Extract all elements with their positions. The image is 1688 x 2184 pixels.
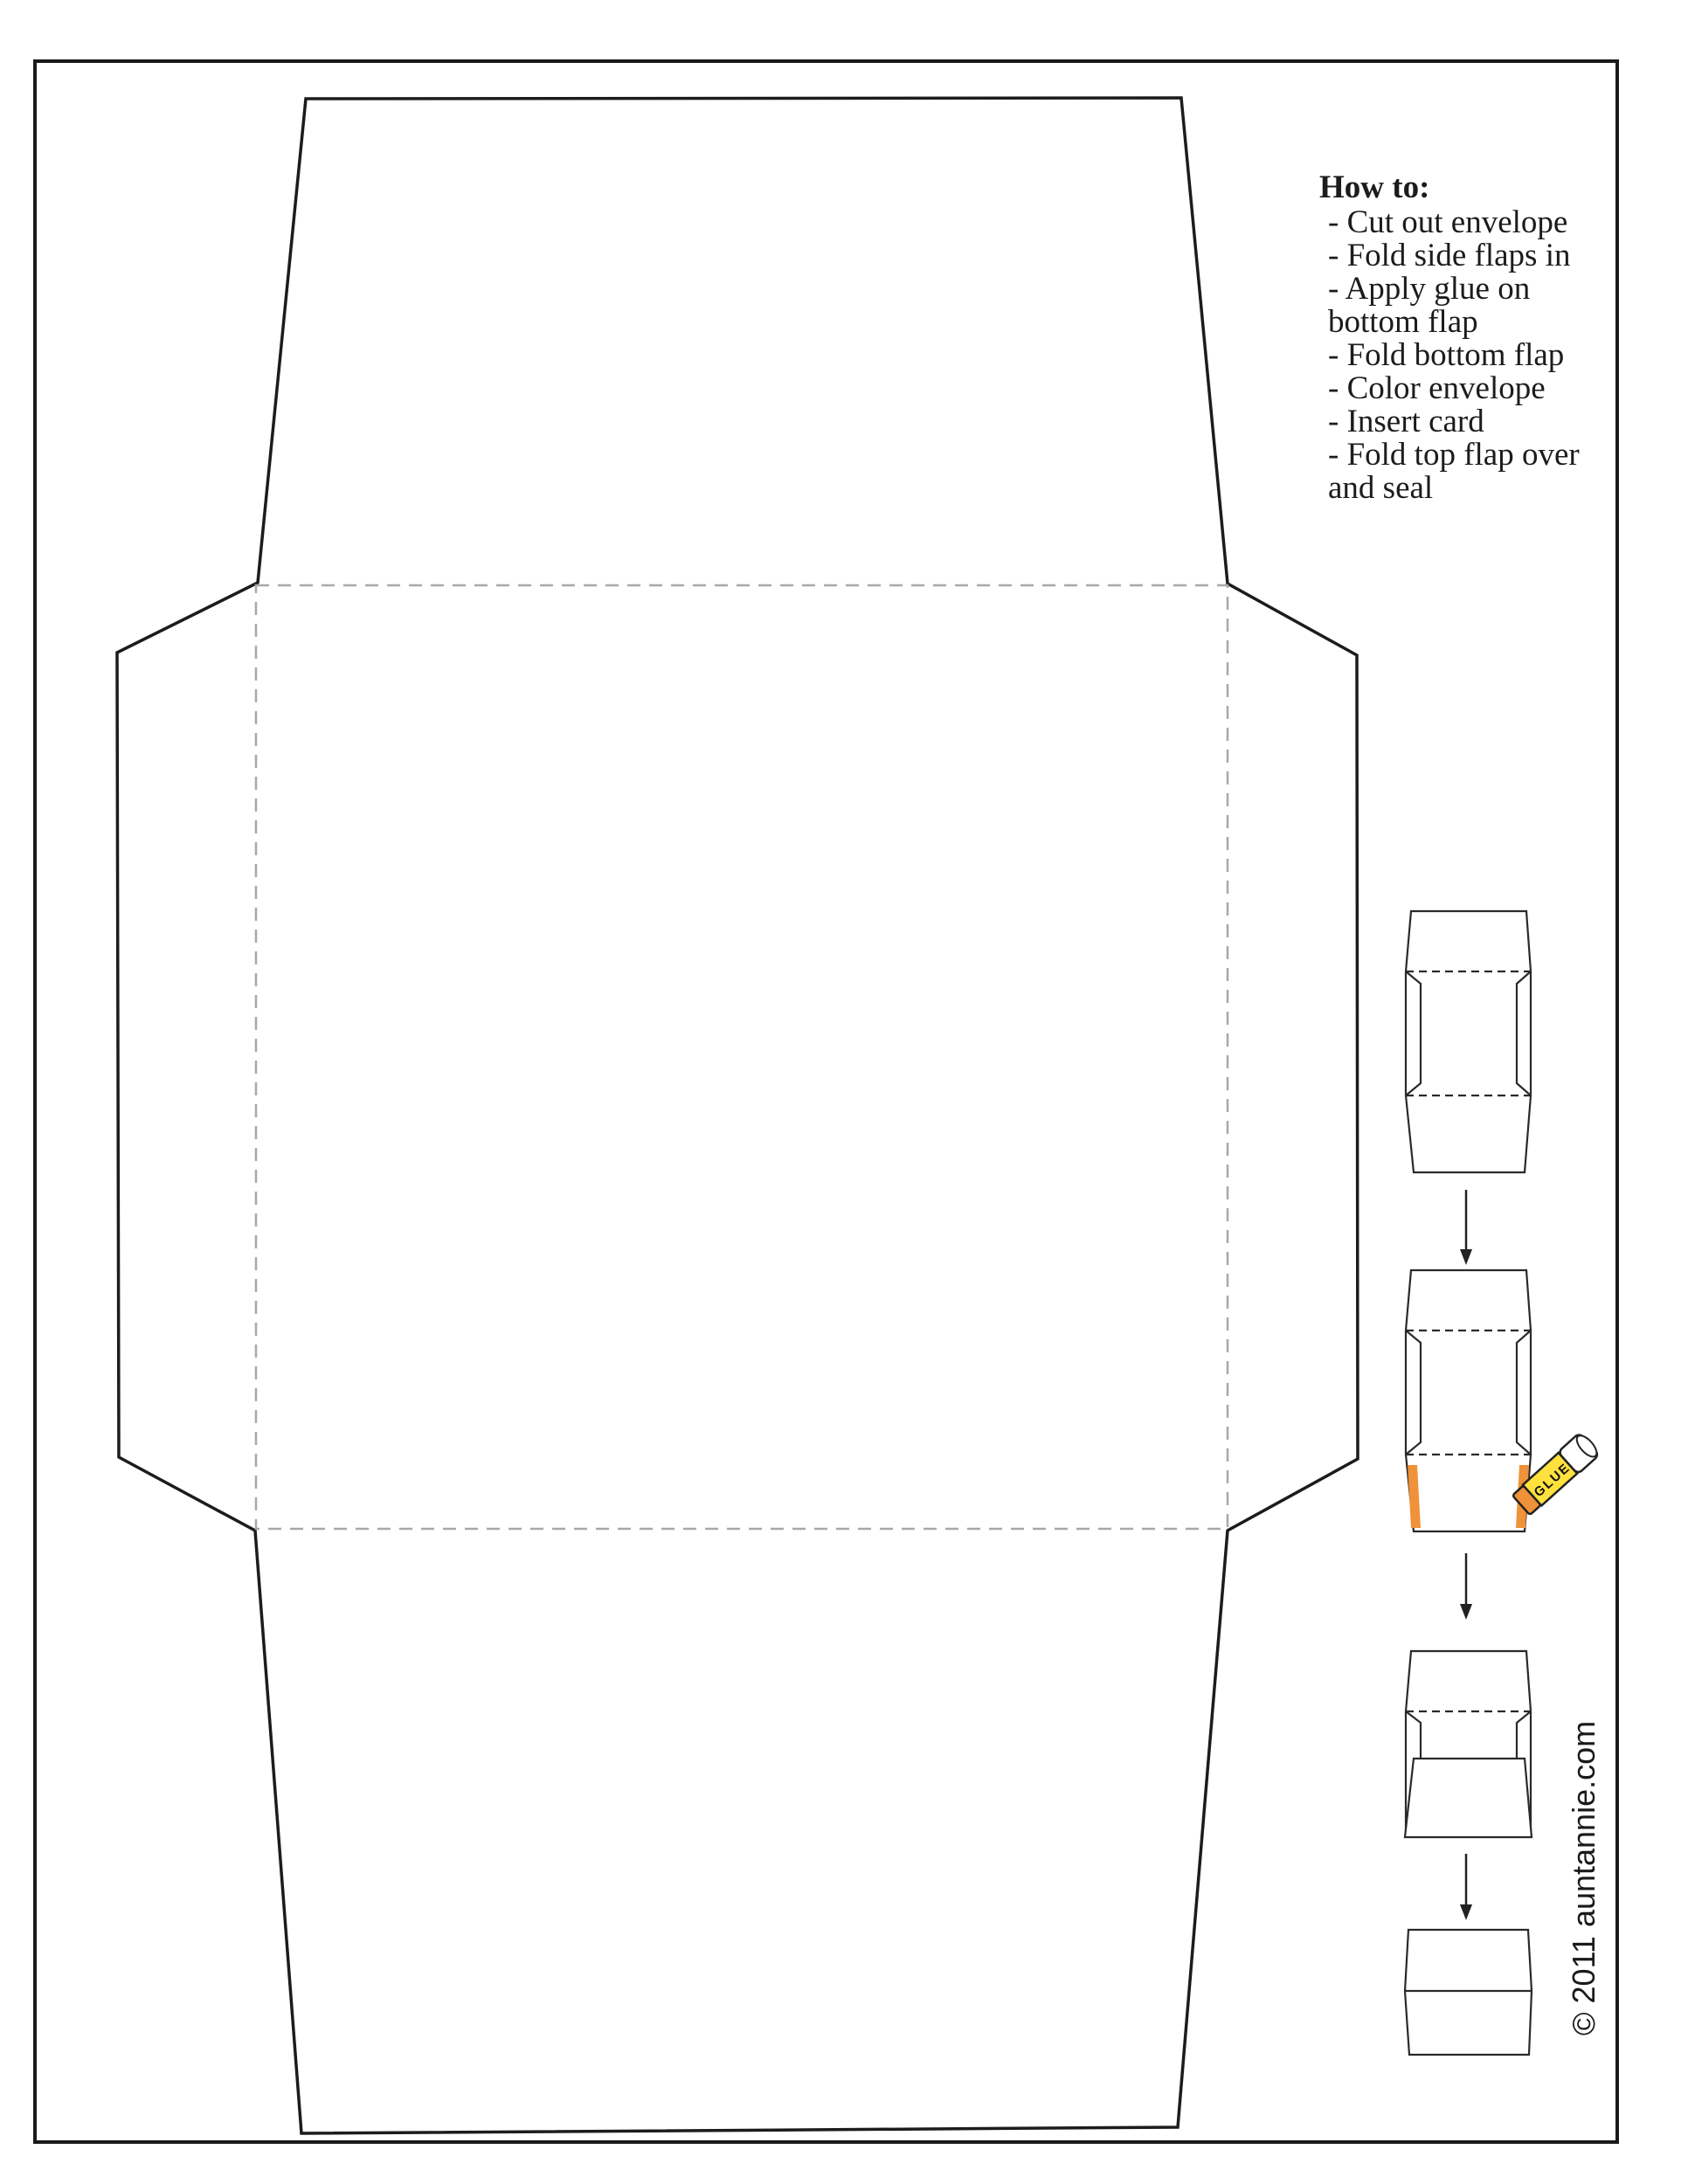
howto-line: - Apply glue on — [1319, 273, 1625, 306]
howto-line: - Insert card — [1319, 405, 1625, 439]
howto-line: - Fold bottom flap — [1319, 339, 1625, 372]
arrow-step-1-to-2 — [1460, 1190, 1472, 1265]
copyright-text: © 2011 auntannie.com — [1566, 1721, 1602, 2035]
arrow-step-3-to-4 — [1460, 1854, 1472, 1920]
arrowhead-icon — [1460, 1904, 1472, 1920]
envelope-template — [117, 98, 1358, 2133]
howto-line: - Fold top flap over — [1319, 439, 1625, 472]
step-diagram-fold-bottom-flap — [1405, 1651, 1532, 1837]
mini-closed-envelope-outline — [1405, 1930, 1532, 2055]
envelope-cut-outline — [117, 98, 1358, 2133]
step-diagram-finished-envelope — [1405, 1930, 1532, 2055]
howto-title: How to: — [1319, 171, 1625, 204]
mini-envelope-outline-copy — [1406, 1270, 1531, 1531]
mini-folded-side-flap-left — [1406, 1711, 1421, 1761]
arrow-step-2-to-3 — [1460, 1553, 1472, 1620]
howto-line: - Cut out envelope — [1319, 206, 1625, 239]
envelope-fold-dashed-lines — [256, 585, 1228, 1529]
arrowhead-icon — [1460, 1249, 1472, 1265]
printable-envelope-template-page: GLUE How to: - Cut out en — [0, 0, 1688, 2184]
mini-folded-bottom-flap — [1405, 1759, 1532, 1837]
mini-top-flap-outline — [1406, 1651, 1531, 1711]
arrowhead-icon — [1460, 1604, 1472, 1620]
howto-instructions: How to: - Cut out envelope - Fold side f… — [1319, 171, 1625, 505]
howto-line: and seal — [1319, 472, 1625, 505]
mini-envelope-outline — [1406, 911, 1531, 1172]
howto-line: - Fold side flaps in — [1319, 239, 1625, 273]
step-diagram-apply-glue: GLUE — [1406, 1270, 1602, 1531]
howto-line: - Color envelope — [1319, 372, 1625, 405]
step-diagram-fold-side-flaps — [1406, 911, 1531, 1172]
mini-folded-side-flap-right — [1517, 1711, 1531, 1761]
howto-line: bottom flap — [1319, 306, 1625, 339]
